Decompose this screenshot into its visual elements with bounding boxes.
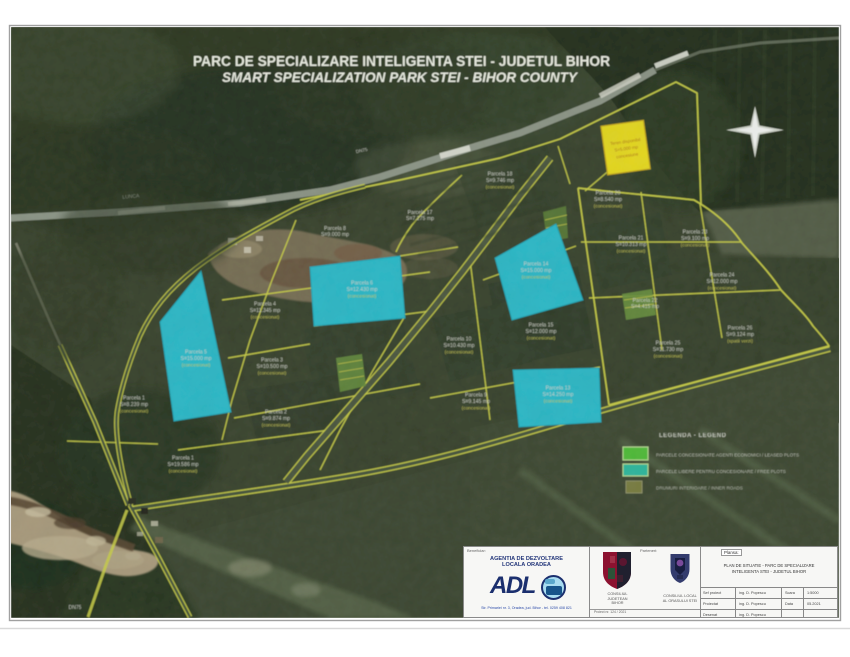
svg-text:PARC DE SPECIALIZARE INTELIGEN: PARC DE SPECIALIZARE INTELIGENTA STEI - …	[193, 53, 610, 70]
svg-text:SMART SPECIALIZATION PARK STEI: SMART SPECIALIZATION PARK STEI - BIHOR C…	[222, 70, 579, 85]
